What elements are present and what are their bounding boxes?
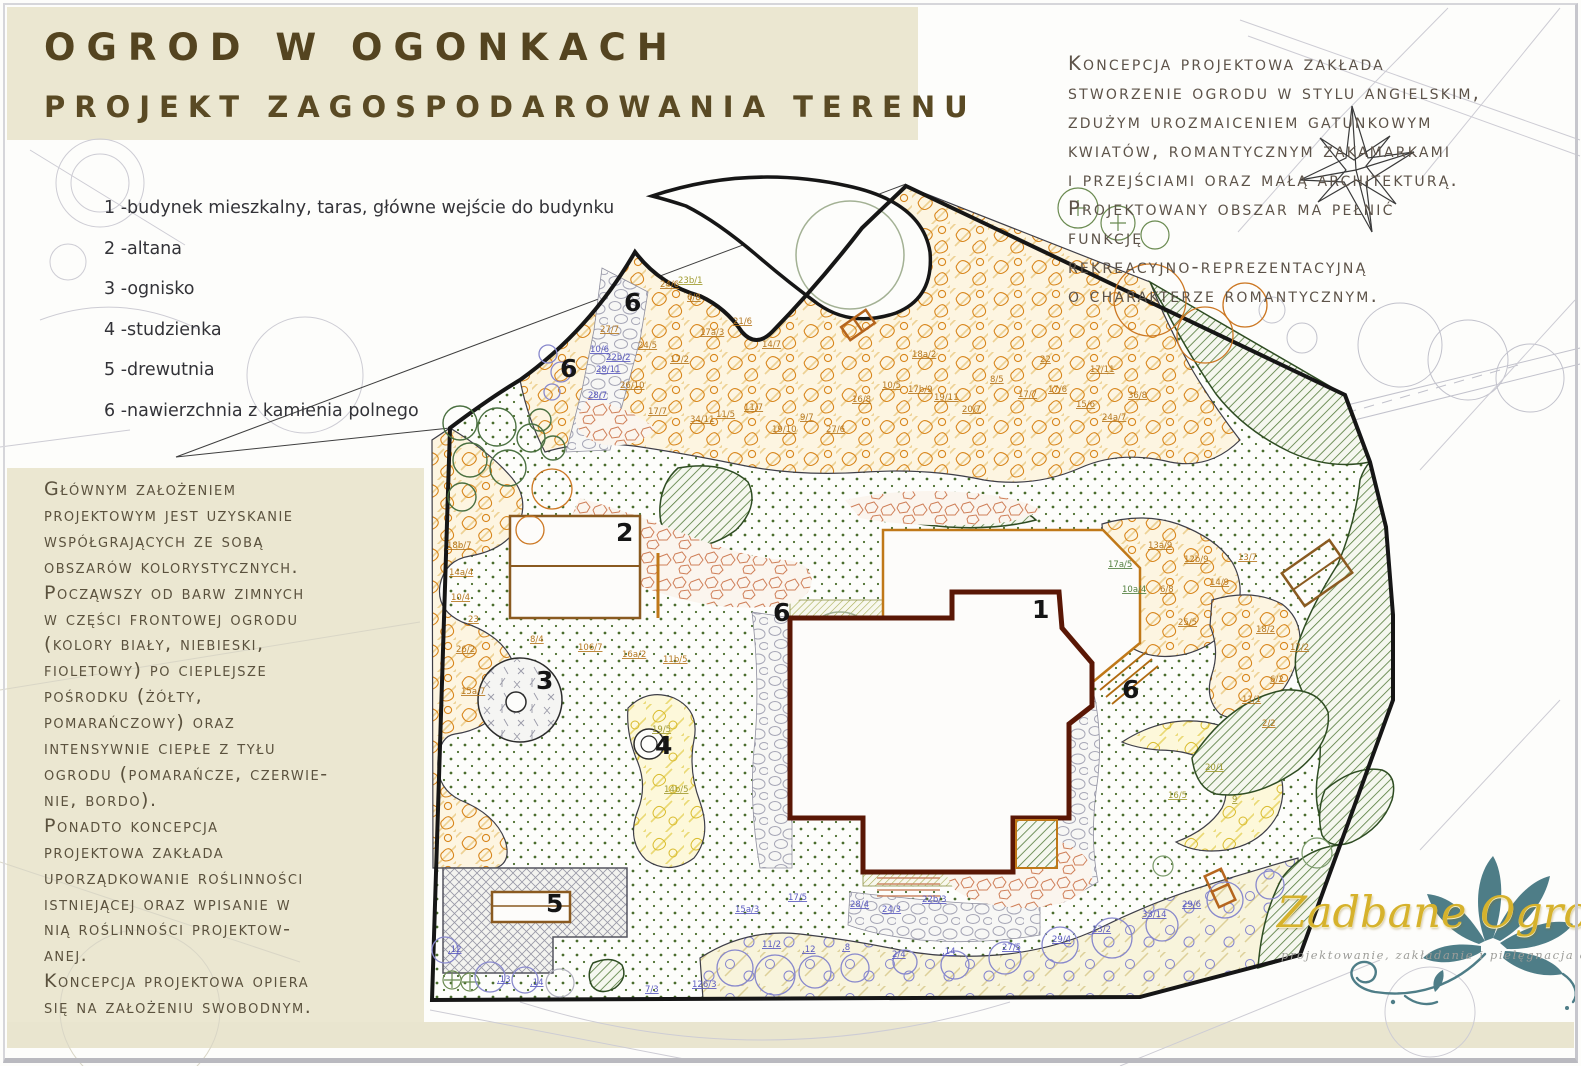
plant-code: 126/3 xyxy=(692,980,717,990)
design-line: Koncepcja projektowa opiera xyxy=(44,969,429,995)
plant-code: 17/5 xyxy=(788,893,807,903)
design-line: pośrodku (żółty, xyxy=(44,684,429,710)
design-board: 123456666 27/724/517/217a/321/614/726/10… xyxy=(0,0,1581,1066)
design-line: współgrających ze sobą xyxy=(44,529,429,555)
concept-note: Koncepcja projektowa zakładastworzenie o… xyxy=(1068,49,1573,310)
legend-item: 1 -budynek mieszkalny, taras, główne wej… xyxy=(104,198,614,218)
area-label-4: 4 xyxy=(655,731,672,760)
plant-code: 9/7 xyxy=(800,413,814,423)
plant-code: 17/11 xyxy=(1090,365,1115,375)
design-line: Głównym założeniem xyxy=(44,477,429,503)
plant-code: 13a/9 xyxy=(1148,541,1172,551)
plant-code: 22b/3 xyxy=(922,895,946,905)
plant-code: ,14 xyxy=(942,947,956,957)
plant-code: 24a/7 xyxy=(1102,413,1126,423)
plant-code: 16/5 xyxy=(1168,791,1187,801)
plant-code: 14a/4 xyxy=(449,568,473,578)
plant-code: 13/2 xyxy=(1092,925,1111,935)
plant-code: 15a/3 xyxy=(735,905,759,915)
legend-item: 2 -altana xyxy=(104,239,614,259)
plant-code: 24/6 xyxy=(660,280,679,290)
plant-code: 13/7 xyxy=(1238,553,1257,563)
plant-code: 22 xyxy=(1040,355,1051,365)
plant-code: 17a/3 xyxy=(700,328,724,338)
plant-code: 36/8 xyxy=(1128,391,1147,401)
plant-code: 15/6 xyxy=(1076,400,1095,410)
concept-line: rekreacyjno-reprezentacyjną xyxy=(1068,252,1573,281)
plant-code: 11/5 xyxy=(716,410,735,420)
plant-code: ,13 xyxy=(497,975,511,985)
plant-code: 17/2 xyxy=(670,355,689,365)
plant-code: ,14 xyxy=(530,978,544,988)
plant-code: 23b/1 xyxy=(678,276,702,286)
design-line: nie, bordo). xyxy=(44,788,429,814)
plan-legend: 1 -budynek mieszkalny, taras, główne wej… xyxy=(104,198,614,441)
plant-code: ,12 xyxy=(448,945,462,955)
plant-code: 29/4 xyxy=(1052,935,1071,945)
area-label-6: 6 xyxy=(624,288,641,317)
plant-code: 17/2 xyxy=(1290,643,1309,653)
plant-code: 11b/5 xyxy=(663,655,687,665)
concept-line: funkcję xyxy=(1068,223,1573,252)
design-line: anej. xyxy=(44,943,429,969)
design-line: fioletowy) po cieplejsze xyxy=(44,658,429,684)
area-label-2: 2 xyxy=(616,518,633,547)
plant-code: 10a/4 xyxy=(1122,585,1146,595)
plant-code: 24/5 xyxy=(638,341,657,351)
plant-code: 18/2 xyxy=(1256,625,1275,635)
plant-code: 9 xyxy=(1232,795,1237,805)
plant-code: 29/6 xyxy=(1182,900,1201,910)
concept-line: Koncepcja projektowa zakłada xyxy=(1068,49,1573,78)
plant-code: 10/4 xyxy=(451,593,470,603)
area-label-6: 6 xyxy=(773,598,790,627)
board-header: OGROD W OGONKACH PROJEKT ZAGOSPODAROWANI… xyxy=(44,26,977,124)
design-line: się na założeniu swobodnym. xyxy=(44,995,429,1021)
design-line: w części frontowej ogrodu xyxy=(44,607,429,633)
plant-code: ,8 xyxy=(842,943,850,953)
plant-code: 106/7 xyxy=(578,643,603,653)
page-title: OGROD W OGONKACH xyxy=(44,26,977,69)
plant-code: 33/14 xyxy=(1142,910,1167,920)
plant-code: 17a/5 xyxy=(1108,560,1132,570)
concept-line: o charakterze romantycznym. xyxy=(1068,281,1573,310)
plant-code: 23 xyxy=(468,615,479,625)
plant-code: 19/11 xyxy=(934,393,959,403)
plant-code: 24/3 xyxy=(882,905,901,915)
plant-code: 17b/9 xyxy=(908,385,932,395)
plant-code: 14b/5 xyxy=(664,785,688,795)
plant-code: 26/2 xyxy=(456,645,475,655)
legend-item: 6 -nawierzchnia z kamienia polnego xyxy=(104,401,614,421)
plant-code: ,12 xyxy=(802,945,816,955)
plant-code: 27/5 xyxy=(1002,943,1021,953)
plant-code: 20/7 xyxy=(962,405,981,415)
plant-code: 16a/2 xyxy=(622,650,646,660)
design-line: obszarów kolorystycznych. xyxy=(44,555,429,581)
plant-code: 28/4 xyxy=(850,900,869,910)
design-line: projektowym jest uzyskanie xyxy=(44,503,429,529)
plant-code: 16/8 xyxy=(852,395,871,405)
plant-code: 6/2 xyxy=(1270,675,1284,685)
plant-code: 8/4 xyxy=(530,635,544,645)
plant-code: 10/5 xyxy=(882,381,901,391)
plant-code: 14/7 xyxy=(762,340,781,350)
design-line: intensywnie ciepłe z tyłu xyxy=(44,736,429,762)
concept-line: Projektowany obszar ma pełnić xyxy=(1068,194,1573,223)
design-line: ogrodu (pomarańcze, czerwie- xyxy=(44,762,429,788)
plant-code: 26/10 xyxy=(620,381,645,391)
plant-code: 15a/7 xyxy=(461,687,485,697)
plant-code: 7/3 xyxy=(645,985,659,995)
design-line: pomarańczowy) oraz xyxy=(44,710,429,736)
area-label-3: 3 xyxy=(536,666,553,695)
logo-tagline: projektowanie, zakładanie i pielęgnacja … xyxy=(1281,948,1581,962)
plant-code: 6/8 xyxy=(1160,585,1174,595)
concept-line: stworzenie ogrodu w stylu angielskim, xyxy=(1068,78,1573,107)
plant-code: 8/5 xyxy=(990,375,1004,385)
area-label-5: 5 xyxy=(546,889,563,918)
plant-code: 17/7 xyxy=(648,407,667,417)
plant-code: 34/11 xyxy=(690,415,715,425)
design-note: Głównym założeniemprojektowym jest uzysk… xyxy=(44,477,429,1021)
plant-code: 2/2 xyxy=(1262,719,1276,729)
plant-code: 25/5 xyxy=(1178,618,1197,628)
legend-item: 4 -studzienka xyxy=(104,320,614,340)
area-label-1: 1 xyxy=(1032,595,1049,624)
legend-item: 5 -drewutnia xyxy=(104,360,614,380)
design-line: (kolory biały, niebieski, xyxy=(44,632,429,658)
plant-code: 6/8 xyxy=(687,293,701,303)
page-subtitle: PROJEKT ZAGOSPODAROWANIA TERENU xyxy=(44,90,977,124)
plant-code: 27/6 xyxy=(826,425,845,435)
plant-code: 17/7 xyxy=(1018,390,1037,400)
plant-code: 11/1 xyxy=(1242,695,1261,705)
plant-code: 14/9 xyxy=(1210,578,1229,588)
concept-line: zdużym urozmaiceniem gatunkowym xyxy=(1068,107,1573,136)
plant-code: 11/7 xyxy=(744,403,763,413)
plant-code: 2/4 xyxy=(892,950,906,960)
plant-code: 11/2 xyxy=(762,940,781,950)
plant-code: 18b/7 xyxy=(447,541,471,551)
design-line: Ponadto koncepcja xyxy=(44,814,429,840)
concept-line: i przejściami oraz małą architekturą. xyxy=(1068,165,1573,194)
concept-line: kwiatów, romantycznym zakamarkami xyxy=(1068,136,1573,165)
design-line: istniejącej oraz wpisanie w xyxy=(44,892,429,918)
logo-wordmark: Zadbane Ogrody xyxy=(1277,888,1581,938)
area-label-6: 6 xyxy=(1122,675,1139,704)
design-line: projektowa zakłada xyxy=(44,840,429,866)
design-line: uporządkowanie roślinności xyxy=(44,866,429,892)
plant-code: 19/10 xyxy=(772,425,797,435)
plant-code: 17/6 xyxy=(1048,385,1067,395)
legend-item: 3 -ognisko xyxy=(104,279,614,299)
design-line: Począwszy od barw zimnych xyxy=(44,581,429,607)
plant-code: 19/5 xyxy=(652,725,671,735)
design-line: nią roślinności projektow- xyxy=(44,917,429,943)
plant-code: 21/6 xyxy=(733,317,752,327)
plant-code: 12b/9 xyxy=(1184,555,1208,565)
plant-code: 18a/2 xyxy=(912,350,936,360)
gazebo xyxy=(510,516,658,618)
plant-code: 20/1 xyxy=(1205,763,1224,773)
